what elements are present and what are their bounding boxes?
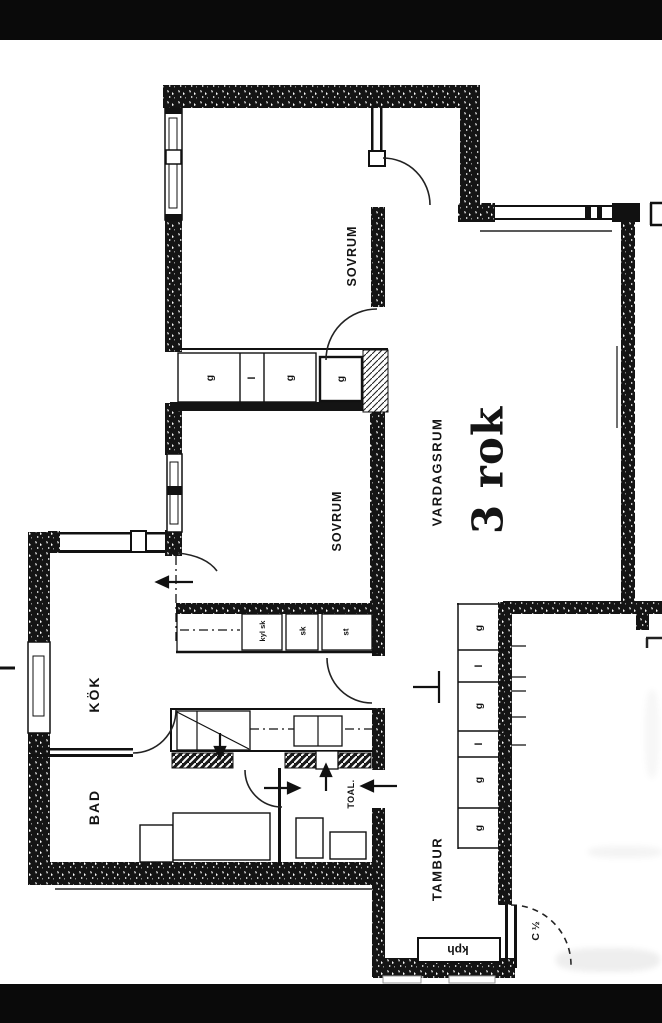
room-label-bad: BAD: [86, 789, 102, 825]
closet-label: l: [473, 743, 485, 746]
door-arc-bedroom2: [178, 553, 217, 571]
letterbox-top: [0, 0, 662, 40]
floor-plan-page: SOVRUM SOVRUM VARDAGSRUM 3 rok KÖK BAD T…: [0, 0, 662, 1023]
kitchen-unit-label-kyl-sk: kyl sk: [259, 619, 267, 643]
bath-fixtures: [140, 813, 366, 862]
closet-label: g: [284, 375, 296, 381]
scan-smudge: [645, 690, 659, 778]
kitchen-unit-label-sk: sk: [299, 627, 308, 636]
entry-door-mark: C ½: [530, 921, 542, 940]
room-label-sovrum-2: SOVRUM: [330, 491, 344, 552]
hall-wardrobe-column: [457, 603, 526, 849]
closet-label: g: [335, 376, 347, 382]
closet-label: l: [246, 377, 258, 380]
closet-label: g: [473, 625, 485, 631]
apartment-size-label: 3 rok: [464, 406, 513, 534]
kitchen-unit-label-st: st: [342, 628, 351, 635]
room-label-tambur: TAMBUR: [430, 837, 445, 901]
room-label-sovrum-1: SOVRUM: [345, 226, 359, 287]
bedroom-closet-row: [170, 349, 388, 412]
closet-label: g: [473, 703, 485, 709]
door-arc-bedroom1-nook: [383, 158, 430, 205]
closet-label: g: [204, 375, 216, 381]
kitchen-cabinet-row: [176, 603, 385, 652]
door-arc-kitchen: [327, 658, 372, 703]
coat-rack-label: kph: [447, 943, 468, 957]
scan-smudge: [556, 948, 660, 972]
room-label-kok: KÖK: [86, 675, 102, 712]
closet-label: l: [473, 665, 485, 668]
kitchen-bench-row: [170, 709, 373, 751]
room-label-vardagsrum: VARDAGSRUM: [430, 418, 445, 527]
closet-label: g: [473, 777, 485, 783]
scan-smudge: [588, 846, 662, 858]
windows: [28, 108, 612, 733]
room-label-toal: TOAL.: [346, 779, 356, 808]
vent-shaft-band: [172, 751, 371, 769]
door-arc-bath: [133, 710, 176, 753]
closet-label: g: [473, 825, 485, 831]
letterbox-bottom: [0, 984, 662, 1023]
